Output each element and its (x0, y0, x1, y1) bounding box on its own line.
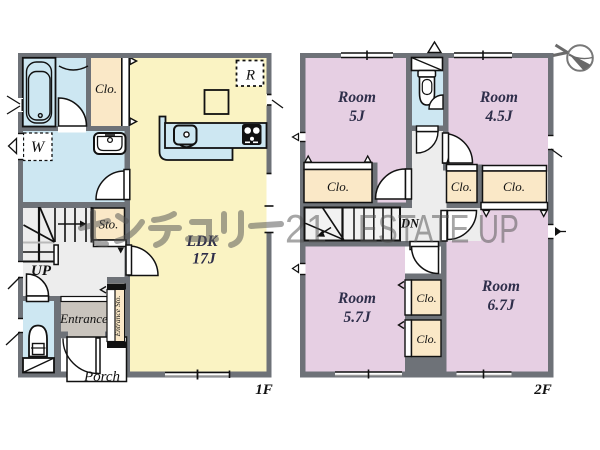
svg-text:4.5J: 4.5J (484, 108, 513, 125)
svg-text:ESTATE UP: ESTATE UP (358, 208, 519, 252)
svg-text:Clo.: Clo. (503, 179, 525, 194)
svg-text:6.7J: 6.7J (487, 297, 515, 314)
svg-text:Clo.: Clo. (416, 291, 436, 305)
svg-text:W: W (31, 139, 46, 156)
svg-text:5J: 5J (349, 108, 366, 125)
svg-text:17J: 17J (192, 251, 217, 268)
svg-text:2F: 2F (533, 382, 552, 398)
svg-text:Entrance Sto.: Entrance Sto. (113, 295, 122, 337)
svg-text:Entrance: Entrance (59, 311, 108, 326)
svg-text:Clo.: Clo. (416, 332, 436, 346)
svg-text:Clo.: Clo. (451, 180, 472, 194)
svg-text:1F: 1F (255, 382, 273, 398)
svg-text:Room: Room (479, 89, 518, 106)
svg-text:Clo.: Clo. (327, 179, 349, 194)
svg-text:R: R (245, 68, 255, 84)
svg-text:Room: Room (481, 278, 520, 295)
svg-text:Room: Room (337, 290, 376, 307)
svg-text:Room: Room (337, 89, 376, 106)
svg-text:5.7J: 5.7J (343, 309, 371, 326)
svg-text:Clo.: Clo. (95, 81, 117, 96)
svg-text:21: 21 (285, 208, 327, 252)
svg-text:Porch: Porch (83, 369, 120, 385)
